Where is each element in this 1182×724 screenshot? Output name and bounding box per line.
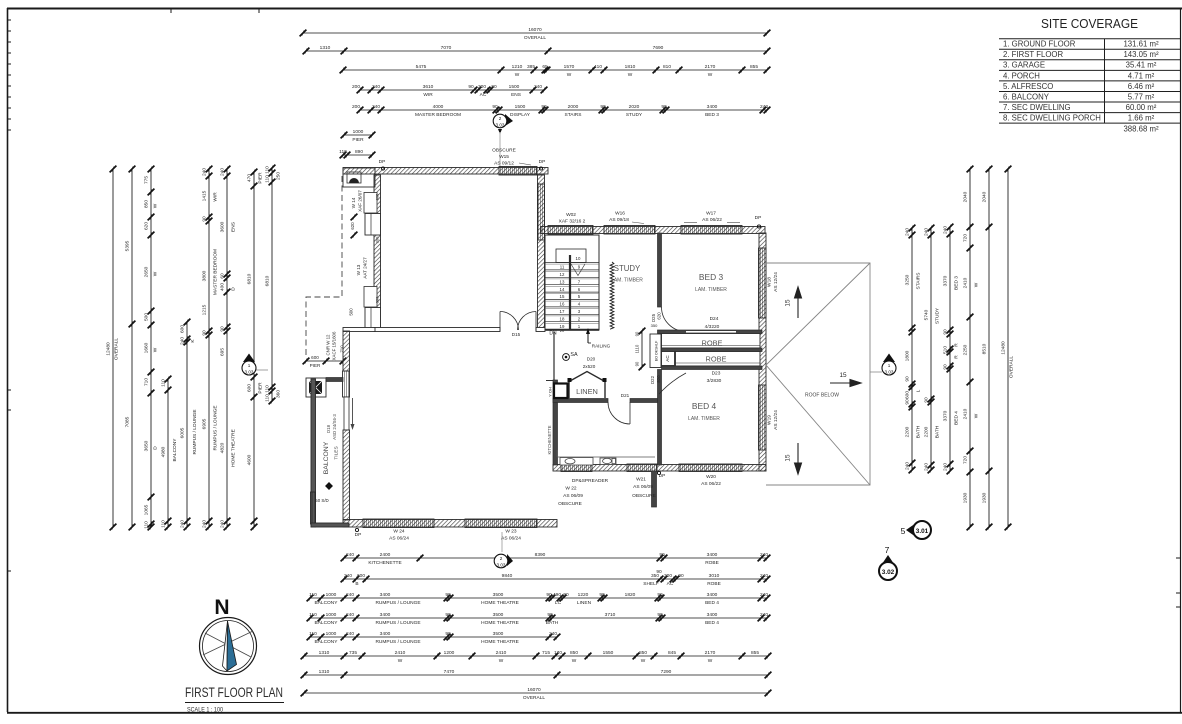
svg-text:W19: W19 (767, 415, 773, 425)
svg-text:620: 620 (657, 312, 662, 320)
svg-text:15: 15 (785, 299, 792, 307)
svg-text:W: W (974, 282, 980, 287)
svg-text:AS 06/24: AS 06/24 (389, 536, 409, 542)
svg-text:90: 90 (659, 552, 665, 558)
svg-text:240: 240 (346, 592, 354, 598)
svg-text:240: 240 (905, 462, 911, 470)
svg-text:3600: 3600 (220, 221, 226, 232)
svg-text:7: 7 (885, 545, 890, 555)
svg-text:2650: 2650 (144, 266, 150, 277)
svg-text:385: 385 (527, 64, 535, 70)
svg-text:695: 695 (220, 348, 226, 356)
svg-text:131.61 m²: 131.61 m² (1123, 40, 1159, 49)
svg-text:775: 775 (144, 176, 150, 184)
svg-text:240: 240 (760, 552, 768, 558)
svg-text:1000: 1000 (326, 592, 337, 598)
svg-text:90: 90 (656, 569, 662, 575)
svg-text:170: 170 (554, 650, 562, 656)
svg-text:W: W (708, 658, 713, 664)
svg-text:BALCONY: BALCONY (172, 438, 178, 462)
svg-text:HOME THEATRE: HOME THEATRE (481, 639, 519, 645)
svg-text:240: 240 (760, 104, 768, 110)
svg-text:3010: 3010 (709, 573, 720, 579)
svg-text:90: 90 (905, 376, 911, 382)
svg-text:3400: 3400 (707, 612, 718, 618)
svg-text:600: 600 (905, 391, 911, 399)
svg-text:5475: 5475 (416, 64, 427, 70)
svg-text:OBSCURE: OBSCURE (558, 501, 582, 507)
svg-text:7. SEC DWELLING: 7. SEC DWELLING (1003, 103, 1071, 112)
svg-text:1.66 m²: 1.66 m² (1128, 113, 1155, 122)
svg-text:500: 500 (144, 313, 150, 321)
svg-text:90: 90 (202, 330, 208, 336)
svg-text:W 23: W 23 (505, 529, 517, 535)
svg-text:1930: 1930 (982, 492, 988, 503)
svg-text:W: W (153, 347, 159, 352)
svg-text:3400: 3400 (707, 104, 718, 110)
svg-text:12: 12 (560, 272, 565, 277)
svg-text:LINEN: LINEN (576, 387, 598, 396)
svg-text:720: 720 (963, 456, 969, 464)
svg-text:1220: 1220 (578, 592, 589, 598)
svg-text:6005: 6005 (180, 427, 186, 438)
svg-text:3.03: 3.03 (496, 123, 505, 128)
svg-text:SA: SA (570, 352, 578, 358)
svg-text:D: D (231, 287, 237, 291)
svg-text:240: 240 (549, 631, 557, 637)
svg-text:240: 240 (344, 573, 352, 579)
svg-text:240: 240 (905, 228, 911, 236)
svg-text:35.41 m²: 35.41 m² (1126, 61, 1157, 70)
svg-text:STUDY: STUDY (935, 307, 941, 324)
svg-text:OVERALL: OVERALL (524, 35, 546, 41)
svg-text:AS 12/24: AS 12/24 (773, 272, 779, 292)
svg-text:2: 2 (500, 556, 503, 561)
svg-text:470: 470 (247, 174, 253, 182)
svg-text:5395: 5395 (125, 240, 131, 251)
svg-text:13: 13 (560, 279, 565, 284)
svg-text:410: 410 (594, 64, 602, 70)
svg-text:620: 620 (350, 222, 355, 230)
svg-text:110: 110 (265, 385, 271, 393)
svg-text:60: 60 (220, 273, 226, 279)
svg-text:2200: 2200 (905, 426, 911, 437)
svg-text:240: 240 (924, 228, 930, 236)
svg-text:W20: W20 (706, 474, 716, 480)
svg-text:W 14: W 14 (351, 197, 356, 208)
svg-text:200: 200 (352, 84, 360, 90)
svg-text:3.01: 3.01 (916, 528, 929, 535)
svg-text:6905: 6905 (202, 418, 208, 429)
svg-text:2000: 2000 (568, 104, 579, 110)
svg-text:6810: 6810 (247, 273, 253, 284)
svg-text:L: L (916, 389, 922, 392)
svg-text:400: 400 (220, 283, 226, 291)
svg-text:D21: D21 (621, 393, 630, 398)
svg-text:855: 855 (750, 64, 758, 70)
svg-text:110: 110 (265, 394, 271, 402)
svg-text:3.03: 3.03 (885, 370, 894, 375)
svg-text:1310: 1310 (319, 669, 330, 675)
svg-text:90: 90 (635, 331, 640, 336)
svg-text:2040: 2040 (963, 191, 969, 202)
svg-text:RUMPUS / LOUNGE: RUMPUS / LOUNGE (213, 405, 219, 450)
svg-text:810: 810 (663, 64, 671, 70)
svg-text:D24: D24 (710, 316, 719, 322)
svg-text:1800: 1800 (905, 350, 911, 361)
svg-text:4000: 4000 (433, 104, 444, 110)
svg-text:300: 300 (664, 573, 672, 579)
svg-text:HOME THEATRE: HOME THEATRE (481, 620, 519, 626)
svg-text:OVERALL: OVERALL (523, 695, 545, 701)
svg-text:AS 09/18: AS 09/18 (609, 217, 629, 223)
svg-text:1215: 1215 (202, 304, 208, 315)
svg-text:1550: 1550 (603, 650, 614, 656)
svg-text:BED 4: BED 4 (692, 401, 717, 411)
svg-text:90: 90 (661, 104, 667, 110)
svg-text:3/2830: 3/2830 (707, 378, 722, 384)
svg-text:DP&SPREADER: DP&SPREADER (572, 478, 609, 484)
svg-text:240: 240 (346, 631, 354, 637)
svg-text:AC: AC (667, 581, 674, 587)
svg-text:4600: 4600 (247, 454, 253, 465)
svg-text:3250: 3250 (905, 274, 911, 285)
svg-text:1820: 1820 (625, 592, 636, 598)
svg-text:BATH: BATH (935, 425, 941, 438)
svg-text:3500: 3500 (493, 631, 504, 637)
svg-text:AC: AC (480, 92, 487, 98)
svg-text:110: 110 (309, 612, 317, 618)
svg-text:AS 09/12: AS 09/12 (494, 161, 514, 167)
svg-text:2: 2 (499, 116, 502, 121)
svg-text:850: 850 (570, 650, 578, 656)
svg-text:DP: DP (659, 473, 666, 479)
svg-text:60.00 m²: 60.00 m² (1126, 103, 1157, 112)
svg-text:BED 4: BED 4 (705, 600, 719, 606)
svg-text:BED 3: BED 3 (954, 276, 960, 290)
svg-text:16070: 16070 (527, 687, 541, 693)
svg-text:W15: W15 (499, 154, 509, 160)
svg-text:3400: 3400 (380, 592, 391, 598)
svg-text:2410: 2410 (963, 277, 969, 288)
svg-text:2410: 2410 (963, 408, 969, 419)
svg-text:W 24: W 24 (393, 529, 405, 535)
svg-text:LAM. TIMBER: LAM. TIMBER (611, 278, 643, 284)
svg-text:W 22: W 22 (565, 486, 577, 492)
svg-text:BALCONY: BALCONY (323, 441, 330, 474)
svg-text:W18: W18 (767, 277, 773, 287)
svg-text:735: 735 (349, 650, 357, 656)
svg-text:BED 3: BED 3 (705, 112, 719, 118)
svg-text:65: 65 (542, 64, 548, 70)
svg-text:1: 1 (888, 363, 891, 368)
svg-text:2410: 2410 (395, 650, 406, 656)
svg-text:90: 90 (600, 104, 606, 110)
svg-text:240: 240 (220, 520, 226, 528)
svg-text:D18: D18 (326, 424, 331, 433)
svg-text:PIER: PIER (310, 363, 321, 368)
svg-text:3370: 3370 (943, 410, 949, 421)
svg-text:CNR W 12: CNR W 12 (326, 334, 331, 356)
svg-text:20: 20 (560, 328, 565, 333)
svg-text:W: W (572, 658, 577, 664)
svg-text:W: W (153, 203, 159, 208)
svg-text:AS 06/09: AS 06/09 (563, 493, 583, 499)
svg-text:W: W (708, 72, 713, 78)
svg-text:LAM. TIMBER: LAM. TIMBER (695, 287, 727, 293)
svg-text:KITCHENETTE: KITCHENETTE (368, 560, 401, 566)
svg-text:BALCONY: BALCONY (315, 600, 339, 606)
svg-text:90: 90 (924, 397, 930, 403)
svg-text:90: 90 (445, 631, 451, 637)
svg-text:240: 240 (372, 104, 380, 110)
svg-text:W: W (398, 658, 403, 664)
svg-text:16: 16 (560, 302, 565, 307)
svg-text:4/3220: 4/3220 (705, 324, 720, 330)
svg-text:W16: W16 (615, 211, 625, 217)
svg-text:9840: 9840 (502, 573, 513, 579)
svg-text:200: 200 (352, 104, 360, 110)
svg-text:11: 11 (560, 265, 565, 270)
svg-text:BATH: BATH (546, 620, 559, 626)
svg-text:RUMPUS / LOUNGE: RUMPUS / LOUNGE (375, 639, 420, 645)
svg-text:3370: 3370 (943, 275, 949, 286)
svg-text:855: 855 (751, 650, 759, 656)
svg-text:500: 500 (349, 308, 354, 316)
svg-text:3.03: 3.03 (245, 370, 254, 375)
svg-text:SHELF: SHELF (643, 581, 659, 587)
svg-text:DP: DP (379, 159, 386, 165)
svg-text:BATH: BATH (916, 425, 922, 438)
svg-text:2200: 2200 (924, 426, 930, 437)
svg-text:600: 600 (357, 573, 365, 579)
svg-text:RAILING: RAILING (592, 344, 611, 349)
svg-text:PIER: PIER (258, 172, 264, 184)
svg-text:6.46 m²: 6.46 m² (1128, 82, 1155, 91)
svg-text:300: 300 (375, 236, 380, 243)
svg-text:W: W (567, 72, 572, 78)
svg-text:STAIRS: STAIRS (565, 112, 582, 118)
svg-text:ROBE: ROBE (706, 355, 727, 364)
svg-text:890: 890 (355, 149, 363, 155)
svg-text:3800: 3800 (202, 270, 208, 281)
svg-text:7470: 7470 (444, 669, 455, 675)
svg-text:15: 15 (560, 294, 565, 299)
svg-text:17: 17 (560, 309, 565, 314)
svg-text:1500: 1500 (509, 84, 520, 90)
svg-text:STUDY: STUDY (614, 264, 641, 273)
svg-text:240: 240 (346, 552, 354, 558)
svg-text:12480: 12480 (106, 342, 112, 356)
svg-text:90: 90 (202, 216, 208, 222)
svg-text:5. ALFRESCO: 5. ALFRESCO (1003, 82, 1053, 91)
svg-text:LC: LC (555, 600, 562, 606)
svg-text:B: B (355, 581, 358, 587)
svg-text:1200: 1200 (444, 650, 455, 656)
svg-text:110: 110 (265, 166, 271, 174)
svg-text:2. FIRST FLOOR: 2. FIRST FLOOR (1003, 50, 1063, 59)
svg-text:600: 600 (247, 384, 253, 392)
svg-text:600: 600 (311, 355, 319, 360)
svg-text:ENS: ENS (511, 92, 521, 98)
svg-text:710: 710 (144, 378, 150, 386)
svg-text:90: 90 (563, 592, 569, 598)
svg-text:BALCONY: BALCONY (315, 620, 339, 626)
svg-text:AC: AC (665, 355, 670, 362)
svg-text:2410: 2410 (496, 650, 507, 656)
svg-text:5740: 5740 (924, 309, 930, 320)
svg-text:90: 90 (445, 592, 451, 598)
svg-text:Y OH: Y OH (548, 387, 553, 397)
svg-text:845: 845 (668, 650, 676, 656)
svg-text:1000: 1000 (353, 129, 364, 135)
svg-text:8510: 8510 (982, 343, 988, 354)
svg-text:AS 12/24: AS 12/24 (773, 410, 779, 430)
svg-text:305: 305 (375, 193, 380, 200)
svg-text:90: 90 (657, 592, 663, 598)
svg-text:4. PORCH: 4. PORCH (1003, 71, 1040, 80)
svg-text:W21: W21 (636, 477, 646, 483)
svg-text:OBSCURE: OBSCURE (492, 148, 516, 154)
svg-text:50 S/D: 50 S/D (315, 498, 328, 503)
svg-text:110: 110 (265, 175, 271, 183)
svg-text:3.03: 3.03 (497, 563, 506, 568)
svg-text:DP: DP (755, 215, 762, 221)
svg-text:240: 240 (760, 612, 768, 618)
svg-text:SITE COVERAGE: SITE COVERAGE (1041, 16, 1138, 31)
svg-text:4980: 4980 (161, 446, 167, 457)
svg-text:KITCHENETTE: KITCHENETTE (547, 425, 552, 454)
svg-text:RUMPUS / LOUNGE: RUMPUS / LOUNGE (375, 620, 420, 626)
svg-text:OBSCURE: OBSCURE (632, 493, 656, 499)
svg-text:90: 90 (491, 84, 497, 90)
svg-text:1: 1 (248, 363, 251, 368)
svg-text:510: 510 (943, 346, 949, 354)
svg-text:ROBE: ROBE (707, 581, 721, 587)
svg-text:AS 06/24: AS 06/24 (501, 536, 521, 542)
svg-text:490: 490 (553, 592, 561, 598)
svg-text:2040: 2040 (982, 191, 988, 202)
svg-text:BED 3: BED 3 (699, 272, 724, 282)
svg-text:FIRST FLOOR PLAN: FIRST FLOOR PLAN (185, 685, 283, 700)
svg-text:1. GROUND FLOOR: 1. GROUND FLOOR (1003, 40, 1076, 49)
svg-text:ASD 24/S6-3: ASD 24/S6-3 (332, 414, 337, 440)
svg-text:6810: 6810 (265, 275, 271, 286)
svg-text:7085: 7085 (125, 416, 131, 427)
svg-text:2170: 2170 (705, 64, 716, 70)
svg-text:240: 240 (346, 612, 354, 618)
svg-text:90: 90 (599, 592, 605, 598)
svg-text:1000: 1000 (326, 631, 337, 637)
svg-text:3.02: 3.02 (882, 569, 895, 576)
svg-text:240: 240 (943, 463, 949, 471)
svg-text:90: 90 (541, 104, 547, 110)
svg-text:AS 06/22: AS 06/22 (701, 481, 721, 487)
svg-text:SCALE 1 : 100: SCALE 1 : 100 (187, 707, 223, 714)
svg-text:D25: D25 (651, 313, 656, 322)
svg-text:143.05 m²: 143.05 m² (1123, 50, 1159, 59)
svg-text:8. SEC DWELLING PORCH: 8. SEC DWELLING PORCH (1003, 113, 1101, 122)
svg-text:110: 110 (161, 520, 167, 528)
svg-text:1500: 1500 (515, 104, 526, 110)
svg-text:AS 06/09: AS 06/09 (633, 484, 653, 490)
svg-text:110: 110 (309, 631, 317, 637)
svg-text:1310: 1310 (320, 45, 331, 51)
svg-text:110: 110 (339, 149, 347, 155)
svg-text:3650: 3650 (144, 440, 150, 451)
svg-text:300: 300 (375, 296, 380, 303)
svg-text:ROBE: ROBE (702, 339, 723, 348)
svg-text:2020: 2020 (629, 104, 640, 110)
svg-text:90: 90 (492, 104, 498, 110)
svg-text:3400: 3400 (380, 612, 391, 618)
svg-text:820: 820 (656, 375, 661, 383)
svg-text:W17: W17 (706, 211, 716, 217)
svg-text:W: W (515, 72, 520, 78)
svg-text:90: 90 (657, 612, 663, 618)
svg-text:W: W (974, 413, 980, 418)
svg-text:OVERALL: OVERALL (114, 338, 120, 360)
svg-text:DP: DP (355, 532, 362, 538)
svg-text:300: 300 (478, 84, 486, 90)
svg-text:240: 240 (202, 168, 208, 176)
svg-text:110: 110 (161, 379, 167, 387)
svg-text:ROBE: ROBE (705, 560, 719, 566)
svg-text:D20: D20 (587, 357, 596, 362)
svg-text:R: R (954, 355, 960, 359)
svg-text:240: 240 (760, 592, 768, 598)
svg-text:240: 240 (534, 84, 542, 90)
svg-text:BO OKSHLF: BO OKSHLF (655, 340, 659, 361)
svg-text:W: W (499, 658, 504, 664)
svg-text:90: 90 (943, 329, 949, 335)
svg-text:1110: 1110 (635, 344, 640, 353)
svg-text:15: 15 (839, 372, 847, 379)
svg-text:1930: 1930 (963, 492, 969, 503)
svg-text:14: 14 (560, 287, 565, 292)
svg-text:XACF 15/1606: XACF 15/1606 (332, 331, 337, 360)
svg-text:110: 110 (144, 521, 150, 529)
svg-text:7690: 7690 (653, 45, 664, 51)
svg-text:BED 4: BED 4 (705, 620, 719, 626)
svg-text:90: 90 (546, 592, 552, 598)
svg-text:PIER: PIER (258, 382, 264, 394)
svg-text:90: 90 (635, 361, 640, 366)
svg-text:AS 06/22: AS 06/22 (702, 217, 722, 223)
svg-text:850: 850 (639, 650, 647, 656)
svg-text:6. BALCONY: 6. BALCONY (1003, 92, 1050, 101)
svg-text:MASTER BEDROOM: MASTER BEDROOM (213, 249, 219, 295)
svg-text:DN: DN (549, 331, 557, 337)
svg-text:90: 90 (678, 573, 684, 579)
svg-text:1570: 1570 (564, 64, 575, 70)
svg-text:D15: D15 (512, 332, 521, 337)
svg-text:2250: 2250 (963, 344, 969, 355)
svg-text:90: 90 (943, 364, 949, 370)
svg-text:1000: 1000 (326, 612, 337, 618)
svg-text:WIR: WIR (213, 192, 219, 202)
svg-text:1415: 1415 (202, 190, 208, 201)
svg-text:W 13: W 13 (356, 264, 361, 275)
svg-text:3400: 3400 (707, 552, 718, 558)
svg-text:620: 620 (144, 222, 150, 230)
svg-text:1210: 1210 (512, 64, 523, 70)
svg-text:240: 240 (220, 168, 226, 176)
svg-text:W: W (641, 658, 646, 664)
svg-text:2400: 2400 (380, 552, 391, 558)
svg-text:WIR: WIR (423, 92, 433, 98)
svg-text:388.68 m²: 388.68 m² (1123, 124, 1159, 133)
